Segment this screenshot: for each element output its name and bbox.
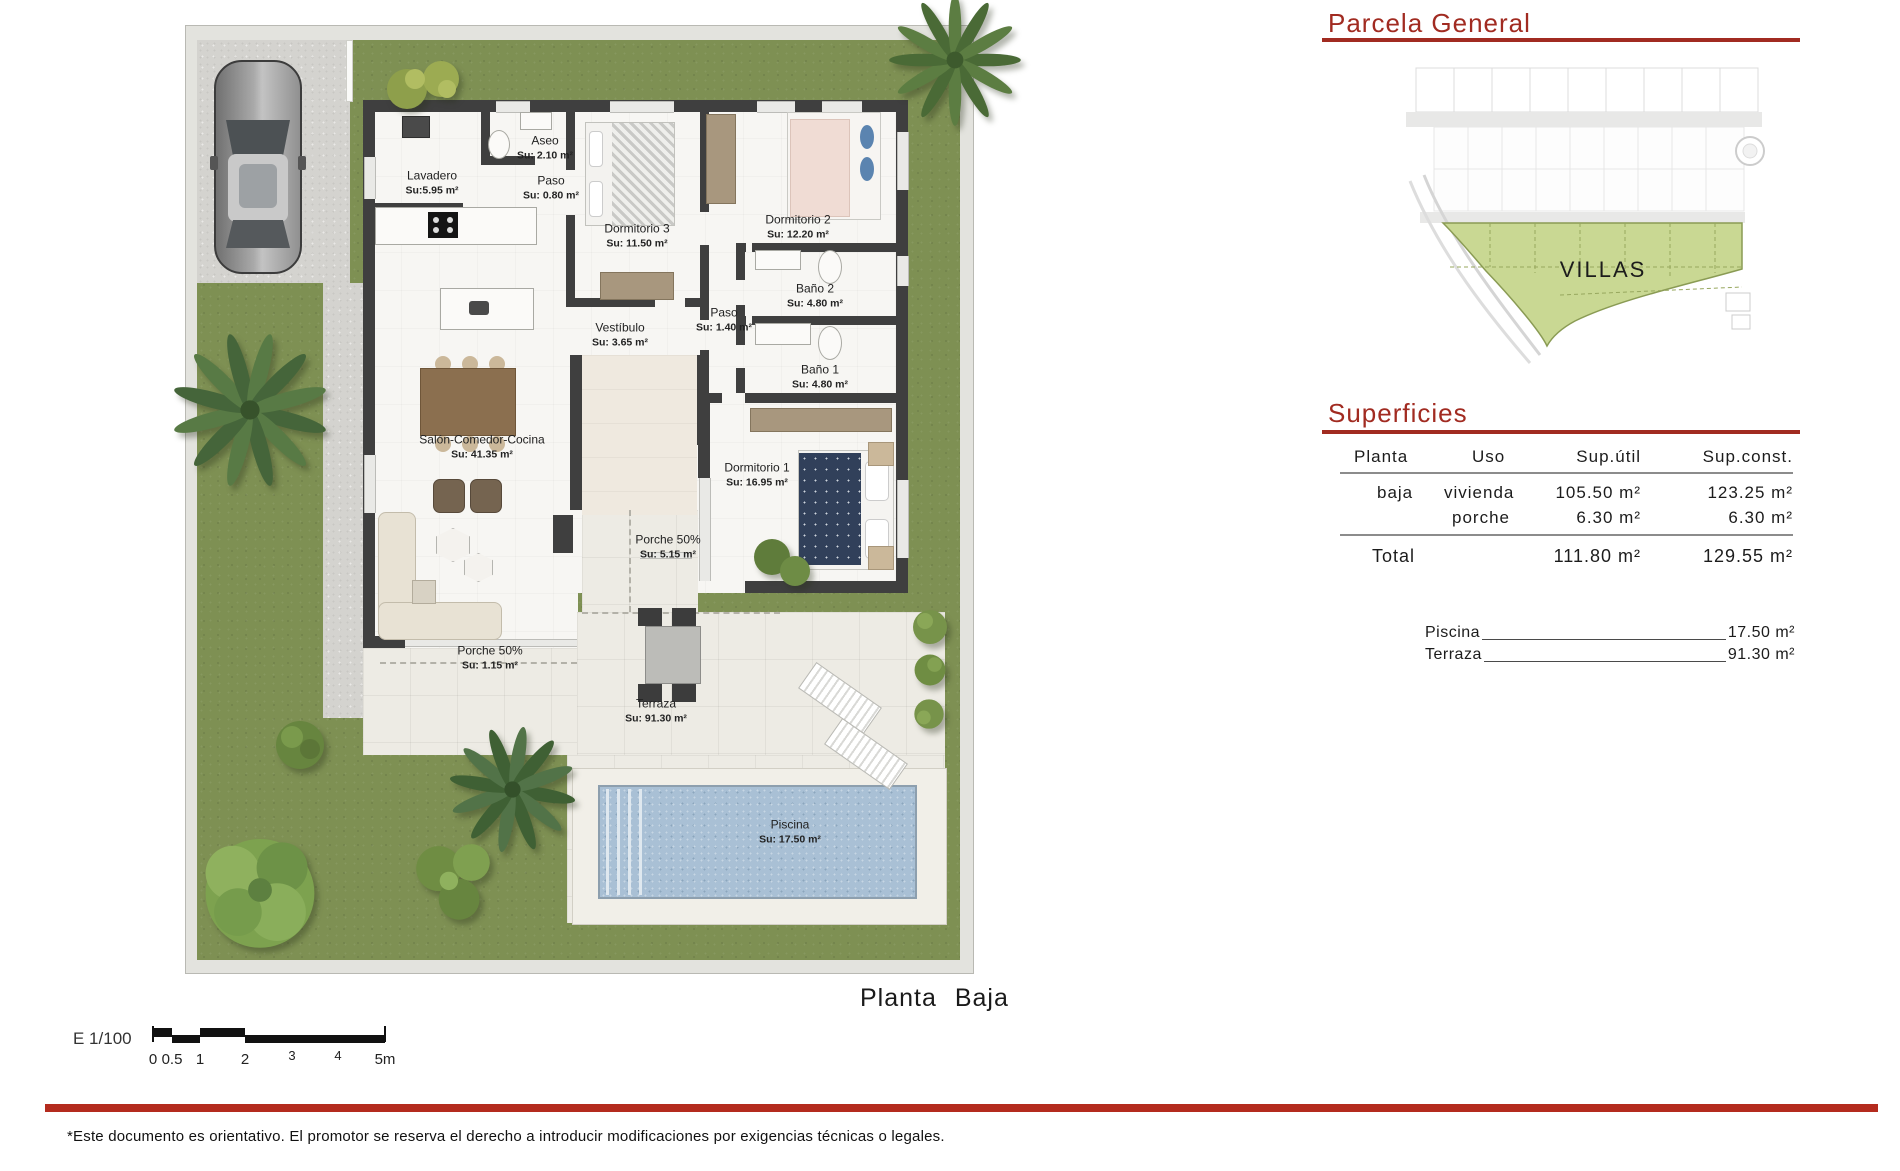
room-label-paso-b: Paso Su: 1.40 m² bbox=[696, 305, 752, 334]
palm-tree-bottom bbox=[445, 722, 580, 857]
room-label-lavadero: Lavadero Su:5.95 m² bbox=[405, 168, 458, 197]
room-label-bano1: Baño 1 Su: 4.80 m² bbox=[792, 362, 848, 391]
extra-row-piscina: Piscina 17.50 m² bbox=[1425, 620, 1795, 642]
aseo-sink bbox=[520, 112, 552, 130]
extra-label: Terraza bbox=[1425, 646, 1482, 664]
room-name: Baño 1 bbox=[792, 362, 848, 378]
bush-right-1 bbox=[908, 605, 952, 649]
footer-rule bbox=[45, 1104, 1878, 1112]
swimming-pool bbox=[598, 785, 917, 899]
total-sup-const: 129.55 m² bbox=[1703, 546, 1793, 567]
superficies-title: Superficies bbox=[1328, 398, 1468, 429]
scale-tick: 1 bbox=[196, 1051, 204, 1068]
room-area: Su: 4.80 m² bbox=[787, 297, 843, 311]
palm-tree-top-right bbox=[885, 0, 1025, 130]
room-area: Su: 0.80 m² bbox=[523, 189, 579, 203]
scale-ratio-label: E 1/100 bbox=[73, 1029, 132, 1048]
superficies-title-rule bbox=[1322, 430, 1800, 434]
armchair bbox=[433, 479, 465, 513]
patio-chair bbox=[672, 608, 696, 626]
floor-title: Planta Baja bbox=[860, 984, 1009, 1013]
room-area: Su: 41.35 m² bbox=[419, 448, 544, 462]
wall-walkway-left bbox=[570, 355, 582, 510]
room-name: Salón-Comedor-Cocina bbox=[419, 432, 544, 448]
wardrobe-dorm3 bbox=[600, 272, 674, 300]
cooktop bbox=[428, 212, 458, 238]
room-name: Terraza bbox=[625, 696, 687, 712]
bushes-front bbox=[385, 55, 465, 115]
room-label-dormitorio2: Dormitorio 2 Su: 12.20 m² bbox=[765, 212, 830, 241]
room-label-piscina: Piscina Su: 17.50 m² bbox=[759, 817, 821, 846]
room-area: Su: 5.15 m² bbox=[635, 548, 700, 562]
room-name: Aseo bbox=[517, 133, 573, 149]
bush-cluster bbox=[408, 840, 500, 932]
cell-sup-const: 6.30 m² bbox=[1728, 508, 1793, 528]
pillow-blue bbox=[860, 125, 874, 149]
site-plan: VILLAS bbox=[1390, 55, 1780, 370]
wall-bano2-top-stub bbox=[736, 243, 746, 252]
room-area: Su: 16.95 m² bbox=[724, 476, 789, 490]
scale-tick: 0.5 bbox=[162, 1051, 183, 1068]
front-fence bbox=[346, 40, 353, 102]
bushes-terrace-edge bbox=[750, 535, 814, 591]
bano1-double-sink bbox=[755, 323, 811, 345]
room-area: Su: 11.50 m² bbox=[604, 237, 669, 251]
scale-tick: 0 bbox=[149, 1051, 157, 1068]
col-header-uso: Uso bbox=[1472, 447, 1505, 467]
room-name: Lavadero bbox=[405, 168, 458, 184]
parcela-title-rule bbox=[1322, 38, 1800, 42]
washer bbox=[402, 116, 430, 138]
cell-planta: baja bbox=[1377, 483, 1413, 503]
window-right-1 bbox=[897, 132, 909, 190]
room-area: Su: 91.30 m² bbox=[625, 712, 687, 726]
wall-dorm3-left-b bbox=[566, 215, 575, 307]
extra-label: Piscina bbox=[1425, 624, 1480, 642]
terrace-center bbox=[577, 612, 945, 755]
cell-sup-util: 105.50 m² bbox=[1555, 483, 1641, 503]
room-name: Vestíbulo bbox=[592, 320, 648, 336]
extra-leader-line bbox=[1484, 661, 1726, 662]
pool-step bbox=[617, 789, 620, 895]
room-area: Su: 1.15 m² bbox=[457, 659, 522, 673]
room-area: Su: 17.50 m² bbox=[759, 833, 821, 847]
scale-tick: 3 bbox=[288, 1048, 295, 1063]
disclaimer-text: *Este documento es orientativo. El promo… bbox=[67, 1128, 945, 1145]
extra-value: 17.50 m² bbox=[1728, 624, 1795, 642]
window-right-2 bbox=[897, 256, 909, 286]
entry-walkway bbox=[582, 355, 697, 515]
parcela-title: Parcela General bbox=[1328, 8, 1531, 39]
extra-value: 91.30 m² bbox=[1728, 646, 1795, 664]
col-header-sup-const: Sup.const. bbox=[1703, 447, 1793, 467]
wall-paso-right-c bbox=[736, 368, 745, 393]
total-sup-util: 111.80 m² bbox=[1554, 546, 1641, 567]
room-area: Su:5.95 m² bbox=[405, 184, 458, 198]
room-name: Dormitorio 3 bbox=[604, 221, 669, 237]
bano2-toilet bbox=[818, 250, 842, 284]
scale-bar: E 1/100 0 0.5 1 2 3 4 5m bbox=[60, 1022, 410, 1074]
wall-dorm1-top bbox=[745, 393, 908, 403]
room-area: Su: 1.40 m² bbox=[696, 321, 752, 335]
scale-tick: 5m bbox=[375, 1051, 396, 1068]
nightstand bbox=[868, 442, 894, 466]
scale-tick: 2 bbox=[241, 1051, 249, 1068]
table-rule-bottom bbox=[1340, 534, 1793, 536]
wall-walkway-right bbox=[697, 355, 709, 445]
pool-step bbox=[606, 789, 609, 895]
room-area: Su: 2.10 m² bbox=[517, 149, 573, 163]
room-area: Su: 3.65 m² bbox=[592, 336, 648, 350]
bush-right-3 bbox=[910, 695, 948, 733]
cell-sup-const: 123.25 m² bbox=[1707, 483, 1793, 503]
pillow bbox=[865, 461, 889, 501]
palm-tree-left bbox=[170, 330, 330, 490]
dining-table bbox=[420, 368, 516, 436]
room-name: Porche 50% bbox=[635, 532, 700, 548]
wardrobe-dorm2 bbox=[706, 114, 736, 204]
bush-right-2 bbox=[910, 650, 950, 690]
window-left-1 bbox=[364, 157, 376, 199]
scale-tick: 4 bbox=[334, 1048, 341, 1063]
extra-leader-line bbox=[1482, 639, 1726, 640]
window-right-3 bbox=[897, 480, 909, 558]
room-label-porche-a: Porche 50% Su: 5.15 m² bbox=[635, 532, 700, 561]
table-rule-top bbox=[1340, 472, 1793, 474]
patio-table bbox=[645, 626, 701, 684]
bed-dorm2-blanket bbox=[790, 119, 850, 217]
cell-sup-util: 6.30 m² bbox=[1576, 508, 1641, 528]
room-name: Porche 50% bbox=[457, 643, 522, 659]
bano1-toilet bbox=[818, 326, 842, 360]
pillow bbox=[589, 131, 603, 167]
room-label-dormitorio3: Dormitorio 3 Su: 11.50 m² bbox=[604, 221, 669, 250]
room-label-aseo: Aseo Su: 2.10 m² bbox=[517, 133, 573, 162]
cell-uso: vivienda bbox=[1444, 483, 1514, 503]
pillow bbox=[589, 181, 603, 217]
wall-paso-right-a bbox=[736, 252, 745, 280]
aseo-toilet bbox=[488, 130, 510, 159]
bed-dorm3-blanket bbox=[612, 123, 674, 225]
wall-entry-pillar bbox=[553, 515, 573, 553]
window-top-2 bbox=[610, 101, 674, 113]
room-area: Su: 4.80 m² bbox=[792, 378, 848, 392]
bed-dorm3 bbox=[585, 122, 675, 226]
window-left-2 bbox=[364, 455, 376, 513]
plan-sheet: Lavadero Su:5.95 m² Aseo Su: 2.10 m² Pas… bbox=[0, 0, 1900, 1171]
pool-step bbox=[639, 789, 642, 895]
deciduous-tree bbox=[175, 805, 345, 975]
col-header-planta: Planta bbox=[1354, 447, 1408, 467]
col-header-sup-util: Sup.útil bbox=[1576, 447, 1641, 467]
porch-dashed-boundary-v bbox=[629, 510, 631, 612]
room-label-vestibulo: Vestíbulo Su: 3.65 m² bbox=[592, 320, 648, 349]
room-name: Baño 2 bbox=[787, 281, 843, 297]
extra-row-terraza: Terraza 91.30 m² bbox=[1425, 642, 1795, 664]
bush-left bbox=[270, 715, 330, 775]
room-label-dormitorio1: Dormitorio 1 Su: 16.95 m² bbox=[724, 460, 789, 489]
kitchen-island bbox=[440, 288, 534, 330]
wardrobe-dorm1 bbox=[750, 408, 892, 432]
room-area: Su: 12.20 m² bbox=[765, 228, 830, 242]
room-label-porche-b: Porche 50% Su: 1.15 m² bbox=[457, 643, 522, 672]
bano2-sink bbox=[755, 250, 801, 270]
sofa-bottom bbox=[378, 602, 502, 640]
side-table bbox=[412, 580, 436, 604]
dorm1-sliding-glass bbox=[699, 478, 711, 581]
armchair bbox=[470, 479, 502, 513]
car-top-view bbox=[210, 58, 306, 276]
extras-block: Piscina 17.50 m² Terraza 91.30 m² bbox=[1425, 620, 1795, 664]
room-name: Paso bbox=[696, 305, 752, 321]
bed-dorm2 bbox=[787, 112, 881, 220]
room-label-terraza: Terraza Su: 91.30 m² bbox=[625, 696, 687, 725]
pillow-blue bbox=[860, 157, 874, 181]
pool-step bbox=[628, 789, 631, 895]
cell-uso: porche bbox=[1452, 508, 1510, 528]
room-label-bano2: Baño 2 Su: 4.80 m² bbox=[787, 281, 843, 310]
room-name: Dormitorio 2 bbox=[765, 212, 830, 228]
island-sink bbox=[469, 301, 489, 315]
room-name: Piscina bbox=[759, 817, 821, 833]
room-name: Paso bbox=[523, 173, 579, 189]
villas-zone-label: VILLAS bbox=[1560, 257, 1647, 282]
patio-chair bbox=[638, 608, 662, 626]
room-label-salon: Salón-Comedor-Cocina Su: 41.35 m² bbox=[419, 432, 544, 461]
room-label-paso-a: Paso Su: 0.80 m² bbox=[523, 173, 579, 202]
nightstand bbox=[868, 546, 894, 570]
total-label: Total bbox=[1372, 546, 1415, 567]
room-name: Dormitorio 1 bbox=[724, 460, 789, 476]
